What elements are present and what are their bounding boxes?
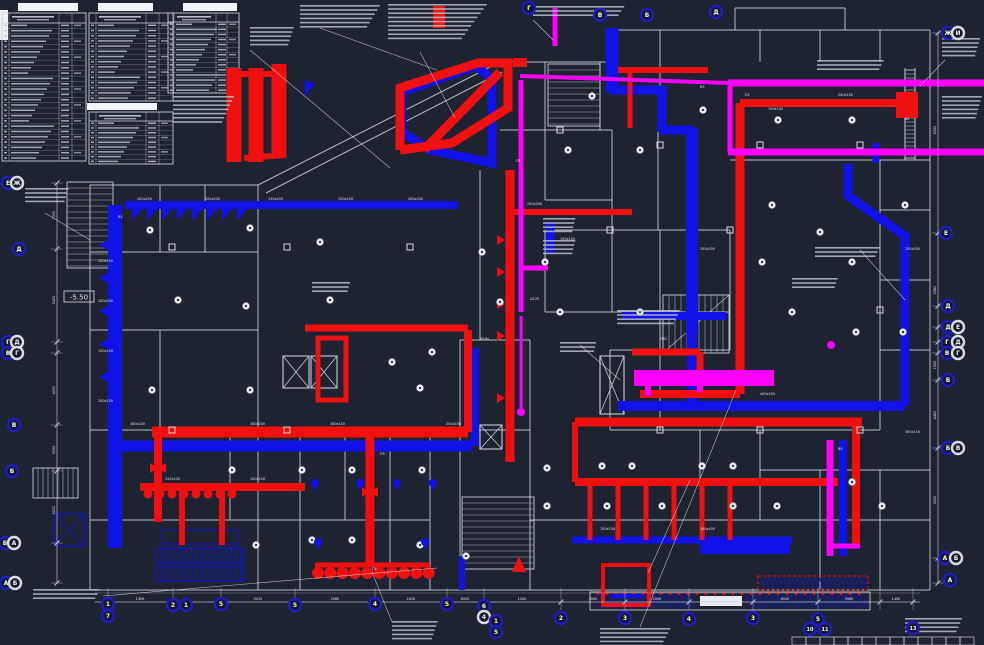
staircase-hatching <box>33 64 915 569</box>
note-text-line <box>600 628 670 630</box>
table-cell-text <box>4 110 7 112</box>
valve-teardrop-tail <box>316 545 320 551</box>
column-marker <box>284 244 290 250</box>
leader-line <box>648 480 690 573</box>
duct-size-label: В3 <box>700 85 704 89</box>
table-cell-text <box>98 51 127 53</box>
table-header-text <box>12 16 54 18</box>
note-text-line <box>312 282 350 284</box>
table-cell-text <box>11 157 36 159</box>
stamp-cell <box>946 637 960 645</box>
duct-size-label: 100x100 <box>250 477 265 481</box>
dimension-value: 4480 <box>933 411 937 420</box>
diffuser-tooth <box>177 209 187 221</box>
supply-diffuser <box>204 490 213 499</box>
louver-dot <box>840 592 843 595</box>
supply-diffuser <box>180 490 189 499</box>
table-cell-text <box>218 69 226 71</box>
table-cell-text <box>161 25 168 27</box>
duct-size-label: П2 <box>745 93 750 97</box>
table-cell-text <box>229 39 236 41</box>
table-cell-text <box>91 56 94 58</box>
louver-hatch <box>682 594 686 609</box>
note-text-line <box>543 222 574 224</box>
table-cell-text <box>91 156 94 158</box>
table-cell-text <box>176 74 218 76</box>
note-text-line <box>817 68 879 70</box>
table-cell-text <box>148 151 156 153</box>
note-text-line <box>173 100 232 102</box>
louver-dot <box>597 592 600 595</box>
table-cell-text <box>61 152 69 154</box>
table-header-text <box>99 16 141 18</box>
table-cell-text <box>4 78 7 80</box>
table-cell-text <box>61 147 69 149</box>
table-cell-text <box>91 66 94 68</box>
louver-dot <box>741 592 744 595</box>
grid-bubble-label: А <box>12 540 17 547</box>
note-text-line <box>617 323 674 325</box>
table-cell-text <box>4 56 7 58</box>
table-cell-text <box>98 40 133 42</box>
ceiling-diffuser-center <box>732 505 734 507</box>
table-cell-text <box>176 59 199 61</box>
louver-hatch <box>832 594 836 609</box>
louver-hatch <box>850 594 854 609</box>
table-cell-text <box>176 29 217 31</box>
duct-size-label: 300x150 <box>905 430 920 434</box>
ceiling-diffuser-center <box>544 261 546 263</box>
louver-dot <box>696 592 699 595</box>
table-cell-text <box>148 161 156 163</box>
note-text-line <box>817 64 881 66</box>
note-text-line <box>942 46 978 48</box>
louver-hatch <box>673 594 677 609</box>
louver-hatch <box>860 578 863 589</box>
column-marker <box>857 142 863 148</box>
ceiling-diffuser-center <box>499 301 501 303</box>
ceiling-diffuser-center <box>881 505 883 507</box>
table-cell-text <box>11 115 32 117</box>
table-cell-text <box>11 62 34 64</box>
note-text-line <box>942 96 982 98</box>
table-cell-text <box>176 44 208 46</box>
louver-hatch <box>770 578 773 589</box>
table-title-bar <box>18 3 78 11</box>
table-cell-text <box>4 62 7 64</box>
table-cell-text <box>170 69 173 71</box>
grid-bubble-label: 7 <box>106 613 110 620</box>
ceiling-diffuser-center <box>419 544 421 546</box>
table-cell-text <box>148 66 156 68</box>
leader-line <box>860 250 905 300</box>
louver-dot <box>750 592 753 595</box>
louver-dot <box>723 592 726 595</box>
wall-segment <box>258 62 500 185</box>
table-cell-text <box>170 59 173 61</box>
table-cell-text <box>176 49 205 51</box>
louver-dot <box>831 592 834 595</box>
table-cell-text <box>74 104 81 106</box>
stamp-cell <box>890 637 904 645</box>
grid-bubble-label: Б <box>10 468 15 475</box>
louver-dot <box>849 592 852 595</box>
dimension-value: 4000 <box>717 597 726 601</box>
duct-size-label: 200x200 <box>205 197 220 201</box>
red-duct-block <box>513 58 527 67</box>
louver-dot <box>777 592 780 595</box>
grid-bubble-label: Г <box>945 339 949 346</box>
table-cell-text <box>98 71 115 73</box>
louver-dot <box>705 592 708 595</box>
note-text-line <box>173 117 224 119</box>
louver-dot <box>804 592 807 595</box>
note-text-line <box>388 12 481 14</box>
duct-size-label: 200x250 <box>98 399 113 403</box>
column-marker <box>757 142 763 148</box>
stamp-cell <box>960 637 974 645</box>
table-cell-text <box>170 39 173 41</box>
louver-hatch <box>655 594 659 609</box>
table-cell-text <box>11 35 49 37</box>
table-cell-text <box>91 25 94 27</box>
louver-hatch <box>779 578 782 589</box>
table-cell-text <box>98 35 136 37</box>
table-cell-text <box>170 89 173 91</box>
note-text-line <box>388 4 487 6</box>
table-cell-text <box>98 142 130 144</box>
table-cell-text <box>98 66 118 68</box>
table-cell-text <box>61 83 69 85</box>
grid-bubble-label: 5 <box>494 629 498 636</box>
blue-arrow <box>305 80 315 96</box>
duct-size-label: 150x100 <box>600 527 615 531</box>
valve-teardrop-tail <box>313 486 317 492</box>
table-cell-text <box>11 110 35 112</box>
grid-bubble-label: Г <box>15 350 19 357</box>
table-cell-text <box>176 54 202 56</box>
grid-bubble-label: 4 <box>373 601 377 608</box>
stamp-cell <box>918 637 932 645</box>
diffuser-tooth <box>192 209 202 221</box>
louver-hatch <box>815 578 818 589</box>
grid-bubble-label: 10 <box>807 627 814 633</box>
ceiling-diffuser-center <box>855 331 857 333</box>
table-cell-text <box>218 74 226 76</box>
louver-hatch <box>838 578 841 589</box>
grid-bubble-label: А <box>948 577 953 584</box>
table-cell-text <box>61 41 69 43</box>
table-cell-text <box>91 161 94 163</box>
table-cell-text <box>98 137 133 139</box>
duct-size-label: 250x200 <box>338 197 353 201</box>
valve-teardrop-tail <box>423 545 427 551</box>
dimension-value: 5400 <box>52 296 56 305</box>
table-cell-text <box>176 89 209 91</box>
table-cell-text <box>148 56 156 58</box>
table-cell-text <box>176 34 214 36</box>
ceiling-diffuser-center <box>791 311 793 313</box>
table-cell-text <box>11 67 31 69</box>
duct-size-label: 150x100 <box>165 477 180 481</box>
note-text-line <box>533 6 624 8</box>
table-cell-text <box>170 79 173 81</box>
valve-teardrop <box>429 479 437 487</box>
damper-bowtie <box>497 267 505 277</box>
valve-teardrop-tail <box>358 486 362 492</box>
stamp-cell <box>820 637 834 645</box>
note-text-line <box>533 10 621 12</box>
duct-size-label: П4 <box>372 567 377 571</box>
table-cell-text <box>170 34 173 36</box>
table-cell-text <box>74 72 81 74</box>
elevation-value: -5.50 <box>70 293 88 301</box>
louver-dot <box>678 592 681 595</box>
dimension-value: 4000 <box>52 386 56 395</box>
table-cell-text <box>161 122 168 124</box>
table-cell-text <box>218 49 226 51</box>
duct-size-label: 250x250 <box>98 259 113 263</box>
table-cell-text <box>61 88 69 90</box>
grid-bubble-label: 3 <box>623 615 627 622</box>
ceiling-diffuser-center <box>391 361 393 363</box>
blue-duct-block <box>700 542 790 554</box>
note-text-line <box>33 597 95 599</box>
grid-bubble-label: Е <box>6 180 10 187</box>
grid-bubble-label: В <box>12 422 17 429</box>
louver-hatch <box>800 594 804 609</box>
table-cell-text <box>229 54 236 56</box>
ventilation-plan-canvas[interactable]: -5.50 200x200200x200150x200250x200200x20… <box>0 0 984 645</box>
table-cell-text <box>148 30 156 32</box>
table-cell-text <box>148 77 156 79</box>
duct-size-label: 200x150 <box>838 93 853 97</box>
table-cell-text <box>4 72 7 74</box>
note-text-line <box>942 109 978 111</box>
table-cell-text <box>61 136 69 138</box>
red-arrow <box>512 556 526 572</box>
leader-line <box>250 50 390 168</box>
louver-dot <box>822 592 825 595</box>
ceiling-diffuser-center <box>149 229 151 231</box>
table-cell-text <box>4 99 7 101</box>
louver-hatch <box>778 594 782 609</box>
ceiling-diffuser-center <box>851 119 853 121</box>
note-text-line <box>617 310 680 312</box>
table-cell-text <box>11 152 39 154</box>
table-cell-text <box>11 46 43 48</box>
table-cell-text <box>4 35 7 37</box>
table-cell-text <box>218 79 226 81</box>
grille-frame <box>162 530 238 544</box>
grid-bubble-label: В <box>945 350 950 357</box>
stamp-cell <box>876 637 890 645</box>
louver-hatch <box>760 594 764 609</box>
table-cell-text <box>98 61 121 63</box>
note-text-line <box>600 641 664 643</box>
note-text-line <box>942 117 976 119</box>
note-text-line <box>250 40 290 42</box>
grid-bubble-label: В <box>956 445 961 452</box>
dimension-value: 1000 <box>518 597 527 601</box>
table-cell-text <box>218 39 226 41</box>
table-cell-text <box>148 25 156 27</box>
duct-size-label: Ø160 <box>480 336 489 341</box>
table-header-text <box>17 19 49 20</box>
table-cell-text <box>74 152 81 154</box>
valve-teardrop <box>393 479 401 487</box>
louver-hatch <box>854 594 858 609</box>
ceiling-diffuser-center <box>631 465 633 467</box>
ceiling-diffuser-center <box>819 231 821 233</box>
note-text-line <box>792 278 838 280</box>
supply-diffuser <box>349 567 361 579</box>
table-cell-text <box>148 122 156 124</box>
duct-size-label: 200x200 <box>408 197 423 201</box>
dimension-value: 7200 <box>52 211 56 220</box>
table-cell-text <box>4 25 7 27</box>
table-cell-text <box>176 69 193 71</box>
table-cell-text <box>11 120 29 122</box>
dimension-value: 3980 <box>845 597 854 601</box>
table-cell-text <box>218 59 226 61</box>
note-text-line <box>817 60 884 62</box>
note-text-line <box>560 346 595 348</box>
ceiling-diffuser-center <box>661 505 663 507</box>
table-cell-text <box>148 92 156 94</box>
table-cell-text <box>91 71 94 73</box>
ceiling-diffuser-center <box>319 241 321 243</box>
schedule-table <box>2 13 86 161</box>
ceiling-diffuser-center <box>771 204 773 206</box>
table-cell-text <box>61 141 69 143</box>
grid-bubble-label: Д <box>14 339 19 346</box>
table-cell-text <box>91 146 94 148</box>
duct-size-label: 150x200 <box>268 197 283 201</box>
table-cell-text <box>148 71 156 73</box>
table-cell-text <box>61 115 69 117</box>
grid-bubble-label: 1 <box>106 601 110 608</box>
grid-bubble-label: Е <box>944 230 948 237</box>
louver-hatch <box>797 578 800 589</box>
table-cell-text <box>91 122 94 124</box>
louver-hatch <box>865 578 868 589</box>
ceiling-diffuser-center <box>255 544 257 546</box>
note-text-line <box>392 625 436 627</box>
grid-bubble-label: Б <box>946 377 951 384</box>
louver-hatch <box>805 594 809 609</box>
table-cell-text <box>74 25 81 27</box>
note-text-line <box>388 17 477 19</box>
louver-dot <box>606 592 609 595</box>
note-text-line <box>250 35 291 37</box>
stamp-cell <box>834 637 848 645</box>
ceiling-diffuser-center <box>591 95 593 97</box>
table-cell-text <box>61 104 69 106</box>
valve-teardrop <box>311 479 319 487</box>
grid-bubble-label: Б <box>645 12 650 19</box>
stamp-cell <box>932 637 946 645</box>
duct-size-label: 250x150 <box>446 422 461 426</box>
ceiling-diffuser-center <box>249 389 251 391</box>
note-text-line <box>815 251 878 253</box>
note-text-line <box>942 104 979 106</box>
grid-bubble-label: И <box>955 30 960 37</box>
table-cell-text <box>61 56 69 58</box>
table-cell-text <box>176 79 215 81</box>
note-text-line <box>815 247 880 249</box>
table-cell-text <box>4 125 7 127</box>
duct-size-label: В4 <box>905 117 909 121</box>
table-cell-text <box>11 56 37 58</box>
table-cell-text <box>4 88 7 90</box>
note-text-line <box>312 290 348 292</box>
table-cell-text <box>148 97 156 99</box>
table-cell-text <box>61 99 69 101</box>
diffuser-tooth <box>147 209 157 221</box>
diffuser-tooth <box>222 209 232 221</box>
louver-hatch <box>787 594 791 609</box>
note-text-line <box>300 26 367 28</box>
valve-teardrop-tail <box>395 486 399 492</box>
stamp-cell <box>862 637 876 645</box>
table-cell-text <box>4 147 7 149</box>
diffuser-tooth <box>207 209 217 221</box>
table-cell-text <box>148 156 156 158</box>
ceiling-diffuser-center <box>559 311 561 313</box>
table-cell-text <box>91 92 94 94</box>
grid-bubble-label: 5 <box>816 616 820 623</box>
note-text-line <box>388 25 471 27</box>
table-cell-text <box>148 82 156 84</box>
supply-diffuser <box>216 490 225 499</box>
ceiling-diffuser-center <box>465 555 467 557</box>
table-header-text <box>177 16 211 18</box>
supply-diffuser <box>386 567 398 579</box>
duct-size-label: 150x100 <box>768 107 783 111</box>
note-text-line <box>25 201 65 203</box>
note-text-line <box>33 589 100 591</box>
blue-duct-run <box>610 90 662 132</box>
diffuser-tooth <box>99 339 108 349</box>
louver-hatch <box>659 594 663 609</box>
table-cell-text <box>148 146 156 148</box>
louver-hatch <box>788 578 791 589</box>
table-cell-text <box>98 87 134 89</box>
note-text-line <box>250 44 288 46</box>
dimension-value: 6000 <box>781 597 790 601</box>
note-text-line <box>250 27 294 29</box>
table-cell-text <box>170 54 173 56</box>
louver-dot <box>669 592 672 595</box>
louver-hatch <box>845 594 849 609</box>
ceiling-diffuser-center <box>351 469 353 471</box>
table-cell-text <box>98 45 130 47</box>
grid-bubble-label: 5 <box>445 601 449 608</box>
table-header-text <box>182 19 206 20</box>
note-text-line <box>942 51 976 53</box>
table-cell-text <box>161 71 168 73</box>
diffuser-tooth <box>99 372 108 382</box>
louver-hatch <box>791 594 795 609</box>
note-text-line <box>392 638 432 640</box>
louver-hatch <box>782 594 786 609</box>
valve-teardrop <box>314 538 322 546</box>
diffuser-tooth <box>99 273 108 283</box>
cad-drawing-sheet[interactable]: -5.50 200x200200x200150x200250x200200x20… <box>0 0 984 645</box>
table-cell-text <box>176 84 212 86</box>
note-text-line <box>388 21 474 23</box>
